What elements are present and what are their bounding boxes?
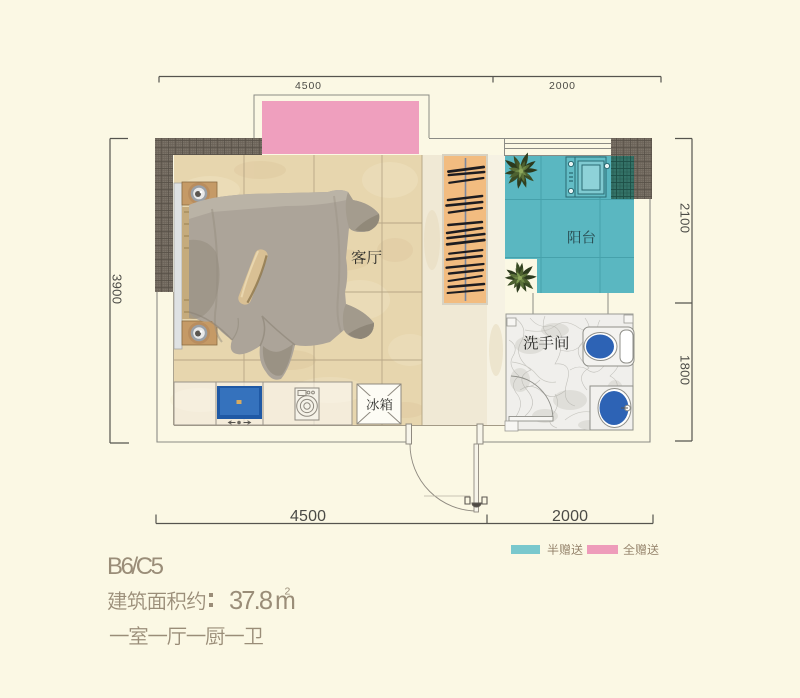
- svg-text:2100: 2100: [678, 203, 693, 233]
- svg-text:2000: 2000: [552, 508, 588, 525]
- svg-text:3900: 3900: [110, 274, 125, 304]
- svg-text:2: 2: [285, 586, 291, 598]
- svg-text:4500: 4500: [295, 80, 321, 92]
- svg-text:37.8: 37.8: [229, 587, 273, 615]
- svg-text:B6/C5: B6/C5: [107, 553, 164, 580]
- svg-text:4500: 4500: [290, 508, 326, 525]
- svg-text:2000: 2000: [549, 80, 575, 92]
- svg-text:1800: 1800: [678, 355, 693, 385]
